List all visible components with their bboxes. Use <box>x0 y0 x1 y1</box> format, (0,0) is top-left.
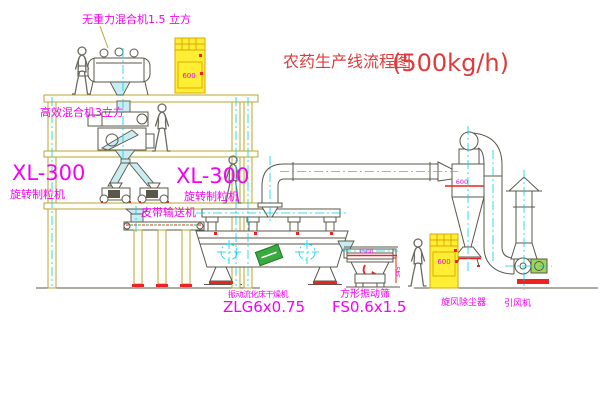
fan-label: 引风机 <box>504 297 531 309</box>
spring-mounts <box>206 217 336 231</box>
person-figure <box>409 239 427 286</box>
diagram-canvas: 600 <box>0 0 600 403</box>
cad-flow-diagram: 600 <box>0 0 600 403</box>
bottom-elevator-dim: 600 <box>437 258 450 266</box>
sieve-length-dim: 1500 <box>358 249 373 256</box>
top-elevator-cabinet: 600 <box>175 38 205 93</box>
granulator-left-model: XL-300 <box>12 161 85 185</box>
gravity-mixer <box>78 48 150 95</box>
granulator-center-name: 旋转制粒机 <box>184 189 239 203</box>
label-leader-line <box>100 26 108 48</box>
sieve-model-label: FS0.6x1.5 <box>332 298 406 316</box>
granulator-left-machine <box>100 183 131 203</box>
granulator-left-name: 旋转制粒机 <box>10 187 65 201</box>
belt-conveyor-label: 皮带输送机 <box>141 205 196 219</box>
cyclone-label: 旋风除尘器 <box>441 296 486 308</box>
fluid-bed-dryer <box>196 209 348 284</box>
granulator-center-machine <box>138 183 169 203</box>
granulator-center-model: XL-300 <box>176 164 249 188</box>
dryer-model-label: ZLG6x0.75 <box>223 298 305 316</box>
vibrating-sieve: 1500 345 <box>338 241 402 287</box>
bottom-elevator-cabinet: 600 <box>430 234 458 288</box>
gravity-mixer-label: 无重力混合机1.5 立方 <box>82 12 191 26</box>
y-chute <box>108 159 156 186</box>
cyclone-dim: 600 <box>456 178 468 186</box>
person-figure <box>153 104 171 151</box>
ground-lines <box>36 285 598 289</box>
sieve-height-dim: 345 <box>395 266 402 278</box>
mixer-discharge-funnel <box>110 82 130 95</box>
high-efficiency-mixer-label: 高效混合机3立方 <box>40 105 124 119</box>
top-elevator-dim: 600 <box>182 72 195 80</box>
page-title-capacity: (500kg/h) <box>392 49 509 77</box>
induced-draft-fan <box>515 258 549 284</box>
